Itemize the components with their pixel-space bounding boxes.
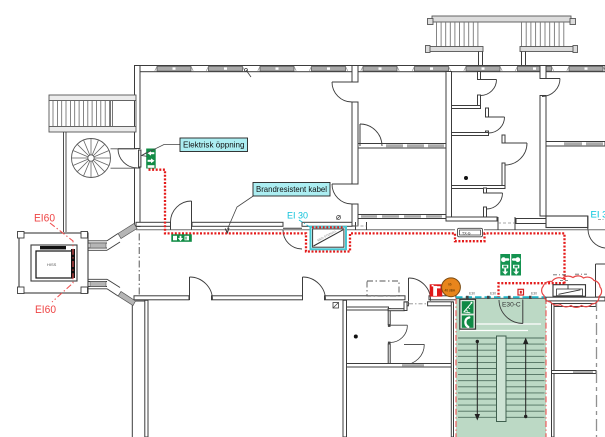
svg-text:nb: nb xyxy=(448,283,452,287)
svg-text:TX-G: TX-G xyxy=(462,231,471,235)
svg-text:EI 3: EI 3 xyxy=(591,210,605,221)
svg-text:E30-C: E30-C xyxy=(502,302,521,309)
svg-text:EI60: EI60 xyxy=(35,304,56,316)
svg-text:E30: E30 xyxy=(531,292,537,296)
svg-text:Brandresistent kabel: Brandresistent kabel xyxy=(256,185,327,194)
svg-text:E30: E30 xyxy=(490,292,496,296)
svg-text:40 dBA: 40 dBA xyxy=(445,289,456,293)
svg-text:Elektrisk öppning: Elektrisk öppning xyxy=(183,141,245,150)
svg-text:HISS: HISS xyxy=(47,262,57,267)
svg-text:E30: E30 xyxy=(469,292,475,296)
svg-text:EI 30: EI 30 xyxy=(287,211,308,221)
svg-text:EI60: EI60 xyxy=(34,213,55,225)
